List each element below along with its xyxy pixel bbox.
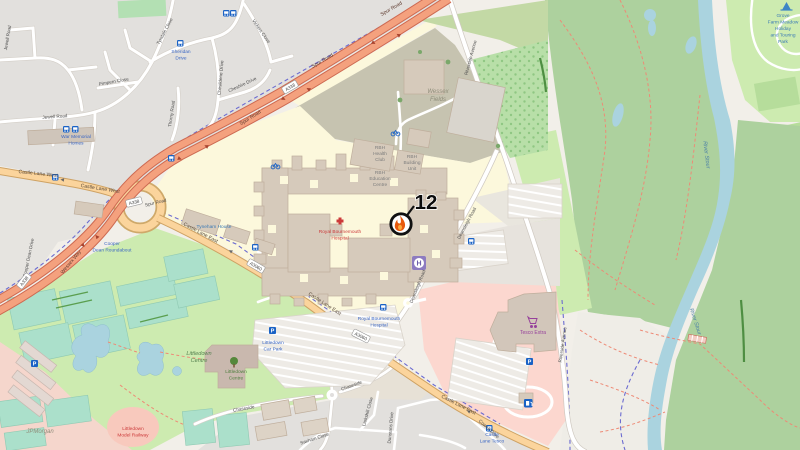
bus-stop-icon bbox=[380, 304, 387, 311]
bus-stop-icon bbox=[177, 40, 184, 47]
bus-stop-icon bbox=[223, 10, 230, 17]
poi-label-littledown-car-park: Car Park bbox=[264, 347, 284, 353]
area-label-littledown-centre: Littledown bbox=[186, 351, 211, 357]
poi-label-rbh-health-club: Club bbox=[375, 157, 385, 163]
poi-label-grove-farm: Holiday bbox=[775, 26, 792, 32]
bus-stop-label-war-memorial-homes: War Memorial bbox=[61, 134, 91, 140]
poi-label-jpmorgan: JPMorgan bbox=[25, 429, 54, 435]
svg-text:H: H bbox=[416, 261, 421, 268]
bus-stop-label-castle-lane-tesco: Castle bbox=[485, 432, 499, 438]
bus-stop-label-rbh: Royal Bournemouth bbox=[358, 316, 401, 322]
poi-label-tesco-extra: Tesco Extra bbox=[520, 330, 546, 336]
poi-label-littledown-model-railway: Model Railway bbox=[117, 433, 149, 439]
fuel-icon bbox=[524, 399, 533, 408]
bus-stop-icon bbox=[230, 10, 237, 17]
area-label-littledown-centre: Centre bbox=[191, 358, 208, 364]
poi-label-grove-farm: and Touring bbox=[771, 33, 796, 39]
poi-label-rbh-building-unit: RBH bbox=[407, 154, 418, 160]
poi-label-grove-farm: Farm Meadow bbox=[768, 20, 799, 26]
helipad-icon: H bbox=[412, 256, 426, 270]
junction-label-cooper-dean-roundabout: Cooper bbox=[104, 241, 120, 247]
bus-stop-label-castle-lane-tesco: Lane Tesco bbox=[480, 439, 505, 445]
marker-number: 12 bbox=[415, 191, 438, 214]
poi-label-littledown-centre: Littledown bbox=[225, 369, 247, 375]
poi-label-rbh-building-unit: Unit bbox=[408, 166, 417, 172]
parking-icon bbox=[31, 360, 38, 368]
poi-label-rbh-health-club: Health bbox=[373, 151, 387, 157]
poi-label-rbh-education-centre: RBH bbox=[375, 170, 386, 176]
bus-stop-label-war-memorial-homes: Homes bbox=[68, 141, 84, 147]
poi-label-rbh-building-unit: Building bbox=[403, 160, 420, 166]
flame-core bbox=[398, 225, 402, 230]
poi-label-littledown-centre: Centre bbox=[229, 376, 244, 382]
parking-icon bbox=[526, 358, 533, 366]
poi-label-grove-farm: Grove bbox=[776, 13, 789, 19]
bus-stop-label-sheridan-drive: Drive bbox=[175, 56, 187, 62]
parking-icon bbox=[269, 327, 276, 335]
junction-label-cooper-dean-roundabout: Dean Roundabout bbox=[93, 248, 133, 254]
poi-label-rbh-education-centre: Centre bbox=[373, 182, 388, 188]
area-label-wessex-fields: Fields bbox=[430, 97, 446, 103]
poi-label-tyneham-house: Tyneham House bbox=[197, 224, 232, 230]
poi-label-rbh-health-club: RBH bbox=[375, 145, 386, 151]
bus-stop-icon bbox=[252, 244, 259, 251]
map-canvas[interactable]: P bbox=[0, 0, 800, 450]
bus-stop-icon bbox=[63, 126, 70, 133]
area-label-wessex-fields: Wessex bbox=[427, 89, 449, 95]
poi-label-grove-farm: Park bbox=[778, 39, 788, 45]
bus-stop-label-sheridan-drive: Sheridan bbox=[171, 49, 191, 55]
bus-stop-label-rbh: Hospital bbox=[370, 323, 387, 329]
bus-stop-icon bbox=[468, 238, 475, 245]
poi-label-royal-bournemouth-hospital: Hospital bbox=[331, 236, 348, 242]
bus-stop-icon bbox=[72, 126, 79, 133]
poi-label-rbh-education-centre: Education bbox=[369, 176, 391, 182]
map-screenshot: P bbox=[0, 0, 800, 450]
bus-stop-icon bbox=[168, 155, 175, 162]
poi-label-littledown-car-park: Littledown bbox=[262, 340, 284, 346]
poi-label-royal-bournemouth-hospital: Royal Bournemouth bbox=[319, 229, 362, 235]
poi-label-littledown-model-railway: Littledown bbox=[122, 426, 144, 432]
